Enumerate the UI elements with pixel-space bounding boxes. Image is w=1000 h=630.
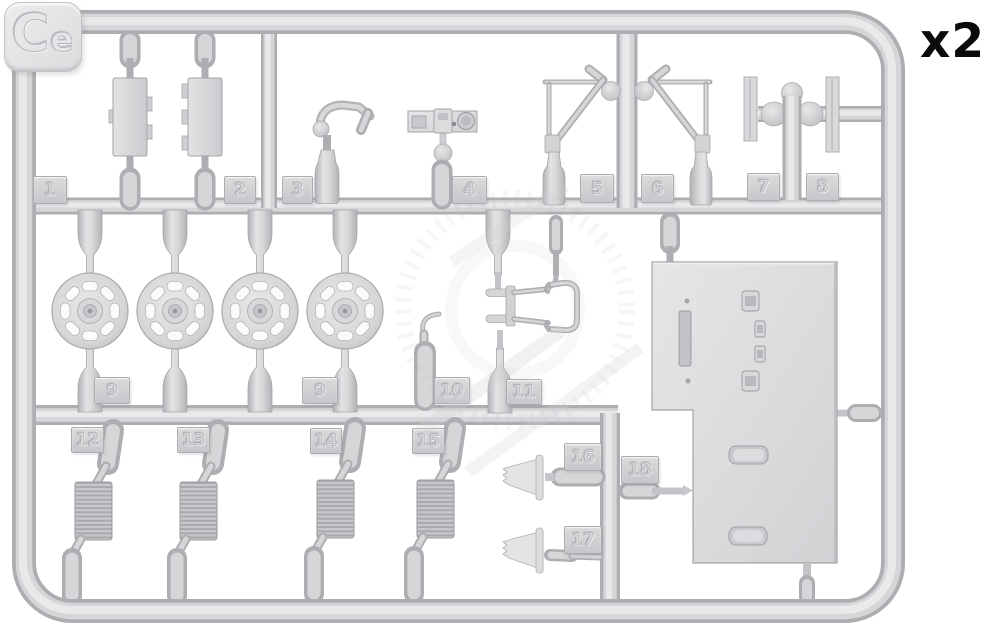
part-tag-2: 2: [224, 176, 256, 204]
part-tag-11: 11: [506, 379, 542, 405]
part-tag-8: 8: [806, 173, 839, 201]
lever-part-3: [313, 105, 370, 204]
part-tag-13: 13: [177, 427, 210, 453]
part-tag-7: 7: [747, 173, 780, 201]
part-tag-14: 14: [310, 428, 342, 454]
stowage-box-part-2: [182, 40, 222, 200]
hull-panel-part-18: [627, 222, 873, 597]
road-wheel-part-9c: [222, 273, 298, 349]
part-tag-12: 12: [71, 427, 104, 453]
part-tag-9a: 9: [94, 377, 130, 404]
part-tag-17: 17: [564, 526, 602, 554]
quantity-label: x2: [920, 14, 985, 69]
part-tag-4: 4: [452, 176, 487, 204]
sprue-code-plate: Ce: [4, 2, 82, 72]
road-wheel-part-9b: [137, 273, 213, 349]
stowage-box-part-1: [109, 40, 152, 200]
coil-spring-part-12: [72, 430, 113, 596]
road-wheel-part-9d: [307, 273, 383, 349]
sprue-photo: Ce x2 1 2 3 4 5 6 7 8 9 9 10 11 12 13 14…: [0, 0, 1000, 630]
part-tag-18: 18: [621, 456, 659, 484]
coil-spring-part-13: [177, 430, 218, 596]
part-tag-6: 6: [641, 174, 674, 203]
sprue-code-text: Ce: [11, 4, 74, 70]
sprue-plastic-layer: [0, 0, 1000, 630]
part-tag-3: 3: [282, 176, 313, 204]
part-tag-1: 1: [33, 176, 67, 204]
part-tag-9b: 9: [302, 377, 338, 404]
road-wheel-part-9a: [52, 273, 128, 349]
part-tag-10: 10: [434, 377, 470, 404]
part-tag-5: 5: [580, 174, 614, 203]
part-tag-16: 16: [564, 443, 602, 471]
part-tag-15: 15: [412, 428, 445, 454]
